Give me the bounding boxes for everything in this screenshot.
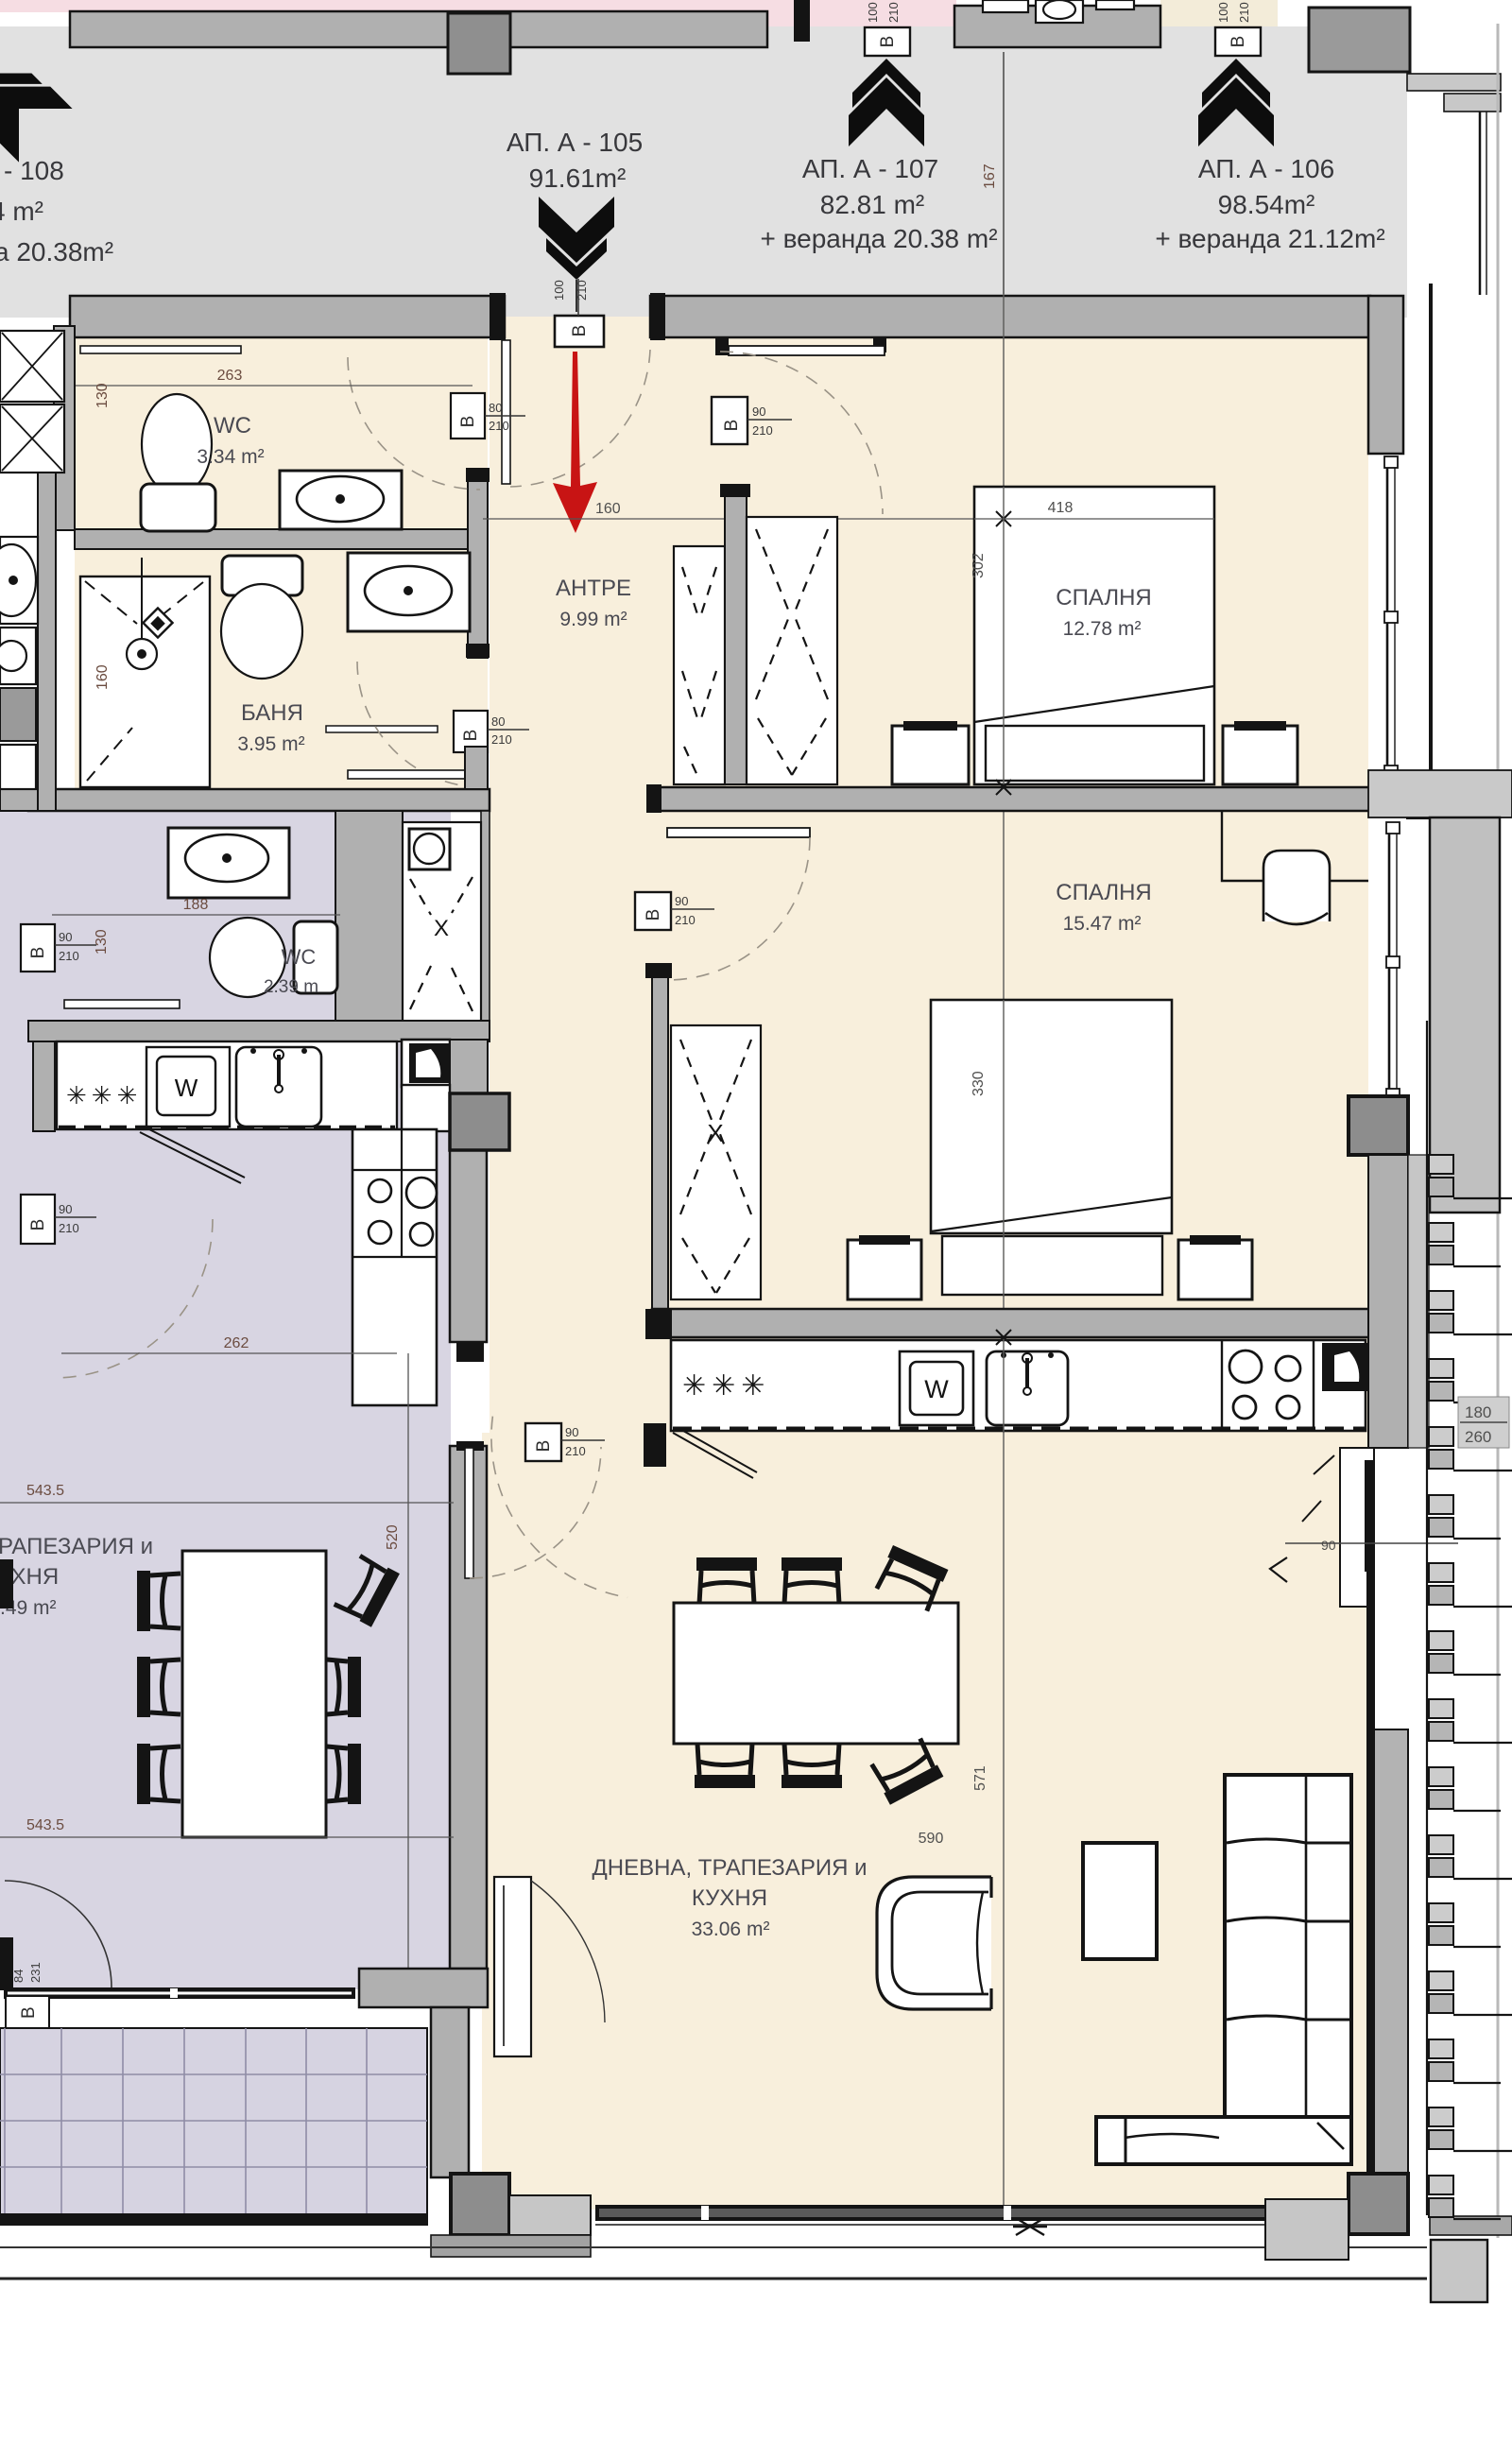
svg-text:90: 90 xyxy=(59,1202,72,1216)
svg-text:9.99 m²: 9.99 m² xyxy=(559,609,627,630)
svg-text:- 108: - 108 xyxy=(4,156,64,185)
svg-text:231: 231 xyxy=(28,1962,43,1983)
svg-text:100: 100 xyxy=(1216,2,1230,23)
svg-text:В: В xyxy=(878,36,898,48)
svg-text:+ веранда 21.12m²: + веранда 21.12m² xyxy=(1155,224,1384,253)
svg-text:✳✳✳: ✳✳✳ xyxy=(66,1081,142,1110)
svg-text:3.34 m²: 3.34 m² xyxy=(197,446,264,468)
svg-text:АП. А - 106: АП. А - 106 xyxy=(1198,154,1334,183)
svg-text:В: В xyxy=(461,730,481,742)
svg-text:543.5: 543.5 xyxy=(26,1817,64,1833)
svg-text:2.39 m: 2.39 m xyxy=(264,977,318,997)
svg-text:180: 180 xyxy=(1465,1403,1491,1421)
svg-text:98.54m²: 98.54m² xyxy=(1218,190,1315,219)
svg-text:4 m²: 4 m² xyxy=(0,197,43,226)
svg-text:330: 330 xyxy=(971,1071,987,1096)
svg-text:130: 130 xyxy=(94,383,111,408)
svg-text:WC: WC xyxy=(214,413,251,439)
svg-text:130: 130 xyxy=(94,929,110,955)
svg-text:90: 90 xyxy=(1321,1538,1336,1553)
svg-text:3.95 m²: 3.95 m² xyxy=(237,733,304,755)
svg-text:АП. А - 105: АП. А - 105 xyxy=(507,128,643,157)
svg-text:167: 167 xyxy=(982,163,998,189)
svg-text:210: 210 xyxy=(575,280,589,301)
svg-text:210: 210 xyxy=(675,913,696,927)
svg-text:262: 262 xyxy=(224,1335,249,1351)
svg-text:X: X xyxy=(707,1119,723,1147)
svg-text:✳✳✳: ✳✳✳ xyxy=(682,1370,770,1402)
svg-text:В: В xyxy=(458,416,478,428)
svg-text:33.06 m²: 33.06 m² xyxy=(692,1918,770,1940)
svg-text:188: 188 xyxy=(183,897,209,913)
svg-text:АП. А - 107: АП. А - 107 xyxy=(802,154,938,183)
svg-text:82.81 m²: 82.81 m² xyxy=(820,190,925,219)
svg-text:КУХНЯ: КУХНЯ xyxy=(692,1885,767,1911)
svg-text:302: 302 xyxy=(971,553,987,578)
svg-text:90: 90 xyxy=(675,894,688,908)
svg-text:СПАЛНЯ: СПАЛНЯ xyxy=(1056,585,1152,611)
svg-text:210: 210 xyxy=(489,419,509,433)
svg-text:160: 160 xyxy=(595,501,621,517)
svg-text:СПАЛНЯ: СПАЛНЯ xyxy=(1056,880,1152,905)
svg-text:В: В xyxy=(534,1440,554,1453)
svg-text:520: 520 xyxy=(385,1524,401,1550)
svg-text:100: 100 xyxy=(552,280,566,301)
svg-text:В: В xyxy=(570,325,590,337)
svg-text:210: 210 xyxy=(752,423,773,438)
svg-text:WC: WC xyxy=(282,945,317,969)
svg-text:X: X xyxy=(434,916,449,941)
svg-text:210: 210 xyxy=(1237,2,1251,23)
svg-text:90: 90 xyxy=(565,1425,578,1439)
svg-text:12.78 m²: 12.78 m² xyxy=(1063,618,1142,640)
svg-text:В: В xyxy=(28,947,48,959)
svg-text:160: 160 xyxy=(94,664,111,690)
svg-text:84: 84 xyxy=(11,1970,26,1983)
svg-text:90: 90 xyxy=(752,404,765,419)
svg-text:а 20.38m²: а 20.38m² xyxy=(0,237,113,267)
svg-text:В: В xyxy=(644,909,663,921)
svg-text:БАНЯ: БАНЯ xyxy=(241,700,303,726)
svg-text:W: W xyxy=(924,1375,949,1403)
svg-text:210: 210 xyxy=(59,1221,79,1235)
svg-text:543.5: 543.5 xyxy=(26,1483,64,1499)
svg-text:W: W xyxy=(175,1074,198,1102)
svg-text:В: В xyxy=(1228,36,1248,48)
svg-text:260: 260 xyxy=(1465,1428,1491,1446)
svg-text:ДНЕВНА, ТРАПЕЗАРИЯ и: ДНЕВНА, ТРАПЕЗАРИЯ и xyxy=(593,1855,868,1881)
svg-text:91.61m²: 91.61m² xyxy=(529,163,627,193)
svg-text:В: В xyxy=(28,1219,48,1231)
svg-text:15.47 m²: 15.47 m² xyxy=(1063,913,1142,935)
svg-text:210: 210 xyxy=(59,949,79,963)
svg-text:418: 418 xyxy=(1048,500,1074,516)
svg-text:590: 590 xyxy=(919,1831,944,1847)
svg-text:571: 571 xyxy=(972,1765,988,1791)
svg-text:80: 80 xyxy=(491,714,505,729)
svg-text:90: 90 xyxy=(59,930,72,944)
svg-text:210: 210 xyxy=(886,2,901,23)
svg-text:210: 210 xyxy=(565,1444,586,1458)
svg-text:АНТРЕ: АНТРЕ xyxy=(556,576,631,601)
svg-text:В: В xyxy=(722,420,742,432)
svg-text:В: В xyxy=(19,2006,39,2019)
svg-text:+ веранда 20.38 m²: + веранда 20.38 m² xyxy=(760,224,997,253)
svg-text:РАПЕЗАРИЯ и: РАПЕЗАРИЯ и xyxy=(0,1534,153,1559)
svg-text:100: 100 xyxy=(866,2,880,23)
svg-text:80: 80 xyxy=(489,401,502,415)
svg-text:263: 263 xyxy=(217,368,243,384)
svg-text:210: 210 xyxy=(491,732,512,747)
